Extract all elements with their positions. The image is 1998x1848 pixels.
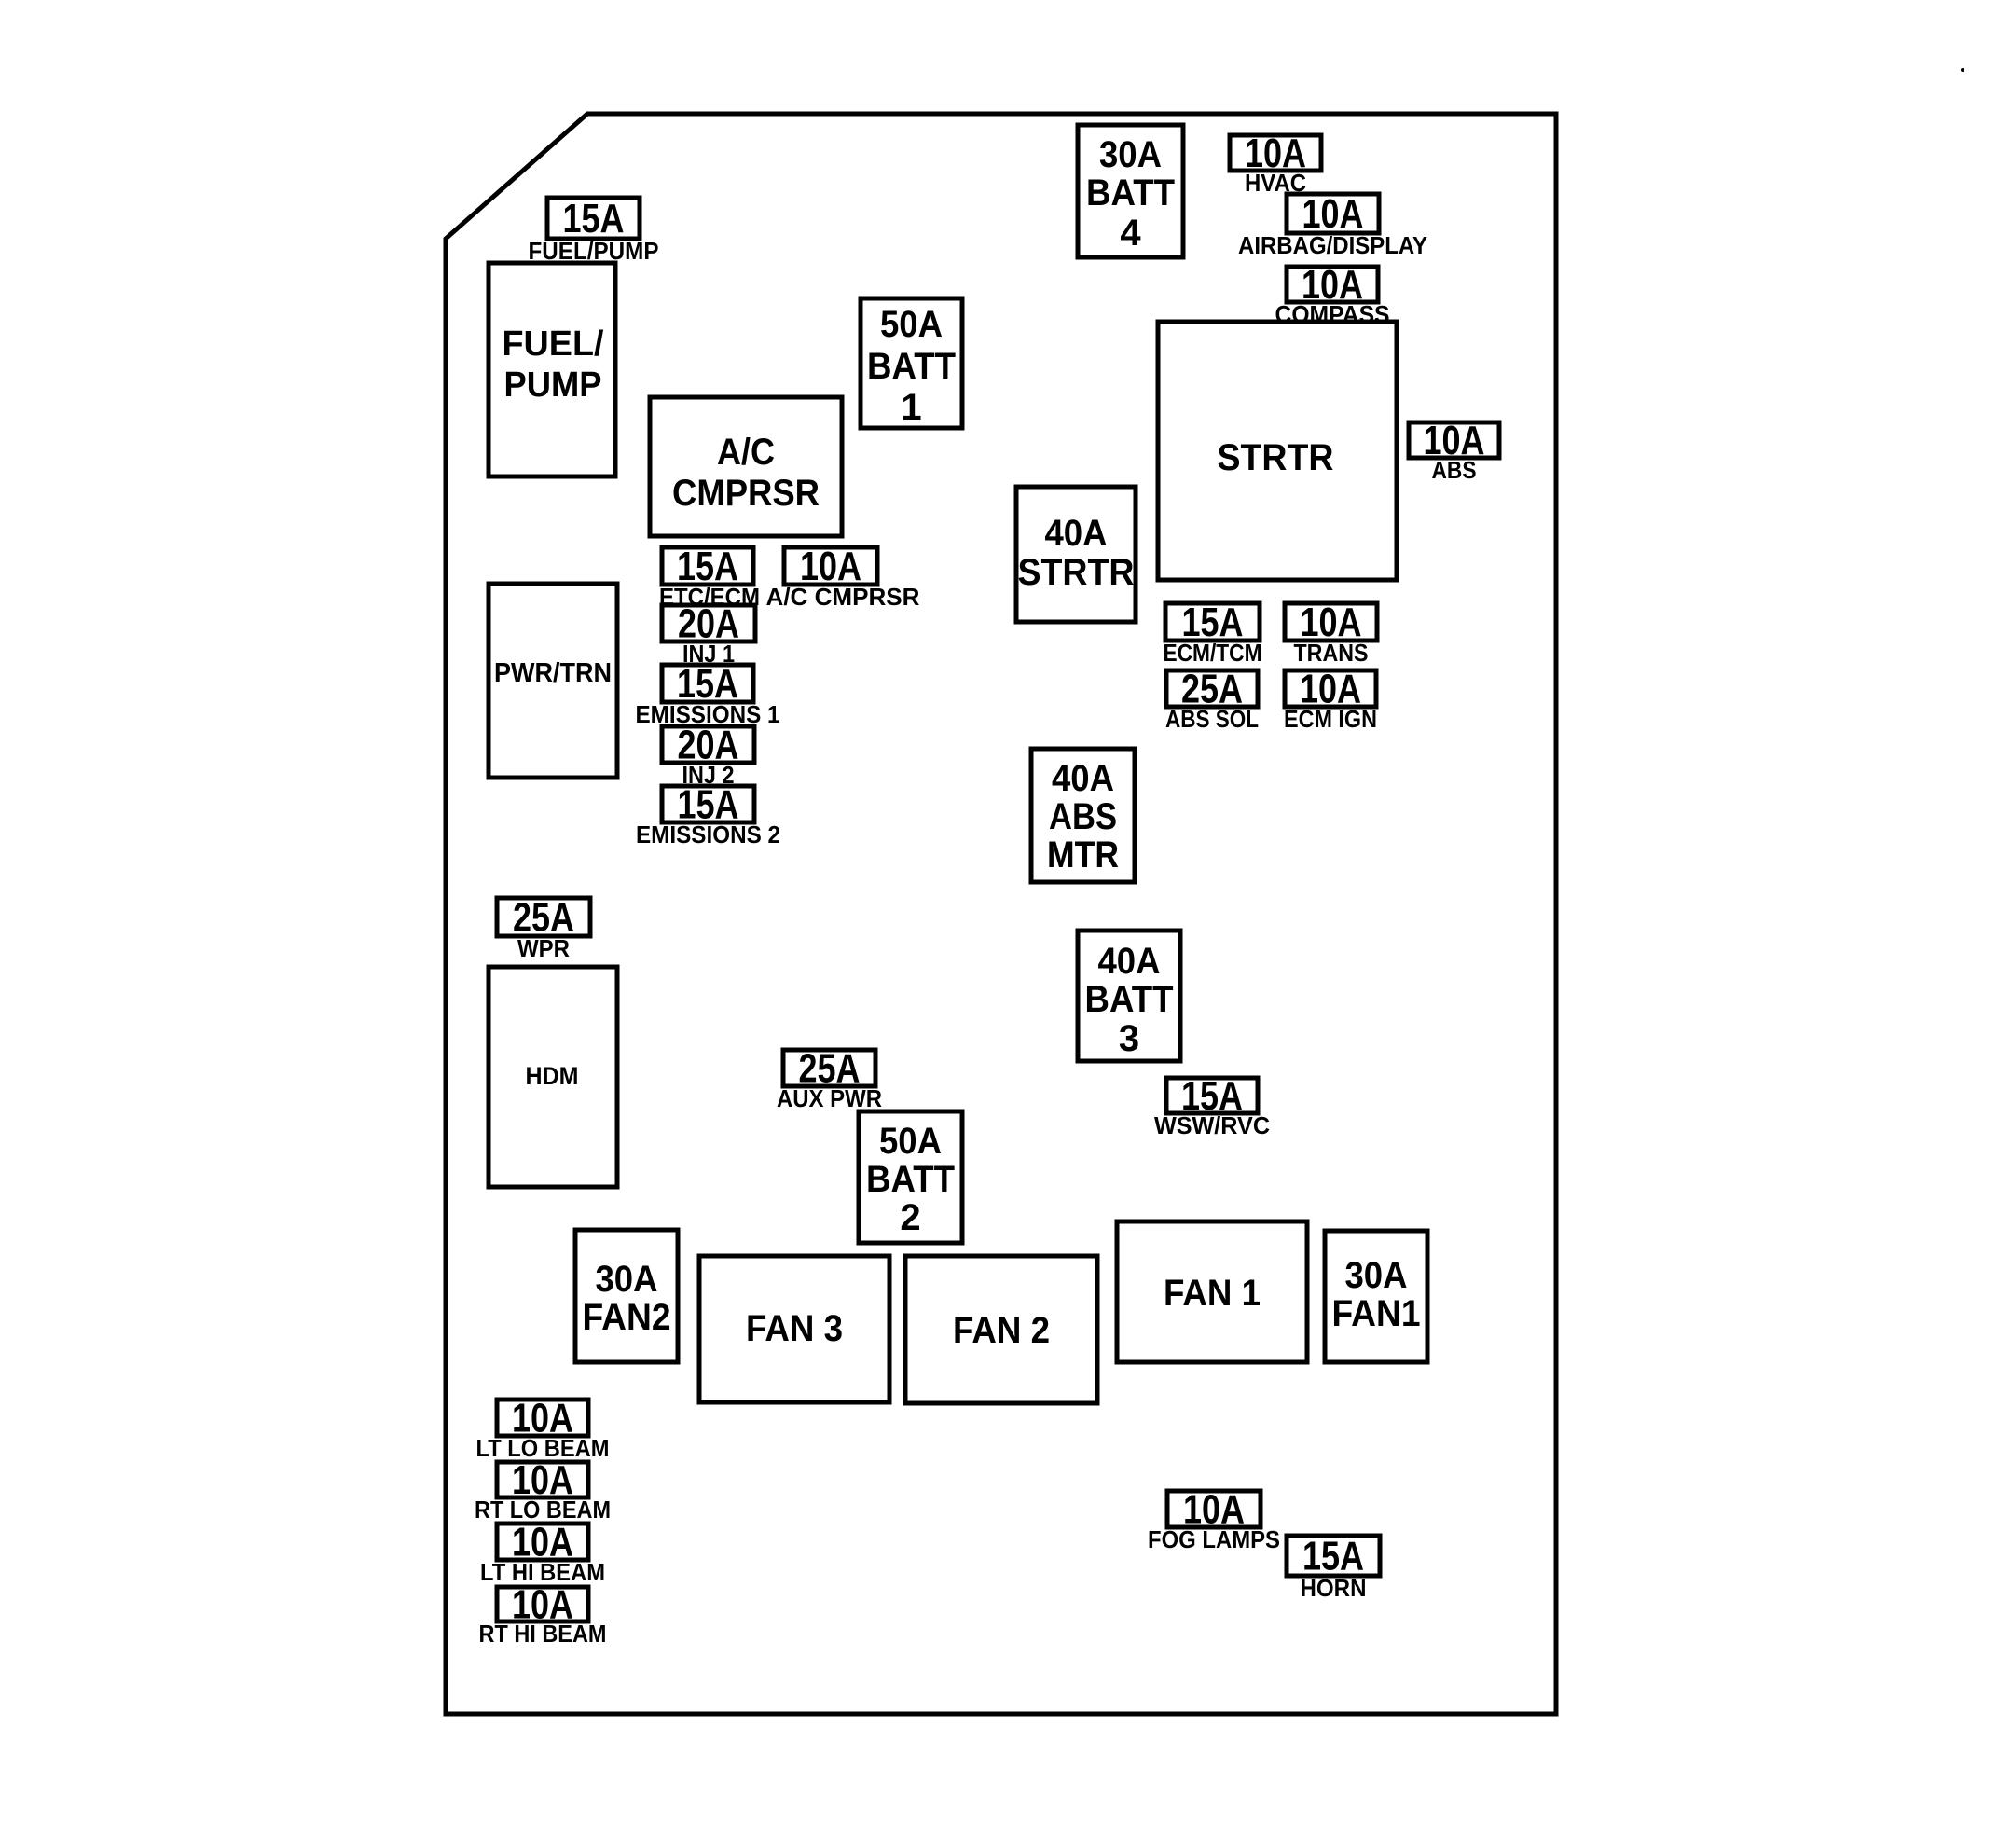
svg-text:ECM/TCM: ECM/TCM (1164, 639, 1262, 667)
svg-text:ABS SOL: ABS SOL (1165, 705, 1259, 733)
svg-text:30A: 30A (1345, 1255, 1408, 1296)
svg-text:FAN 2: FAN 2 (953, 1310, 1050, 1351)
svg-text:10A: 10A (1302, 191, 1364, 237)
svg-text:WPR: WPR (517, 934, 570, 962)
svg-text:1: 1 (901, 387, 921, 428)
svg-text:BATT: BATT (867, 346, 956, 387)
svg-text:STRTR: STRTR (1218, 437, 1334, 478)
svg-text:40A: 40A (1098, 941, 1161, 982)
svg-text:ECM IGN: ECM IGN (1284, 705, 1377, 733)
svg-text:15A: 15A (563, 196, 625, 241)
svg-text:FUEL/: FUEL/ (503, 324, 604, 364)
svg-text:40A: 40A (1052, 758, 1114, 799)
svg-text:ABS: ABS (1049, 796, 1117, 837)
svg-text:HDM: HDM (526, 1062, 579, 1090)
svg-text:30A: 30A (1099, 134, 1162, 175)
svg-text:EMISSIONS 2: EMISSIONS 2 (636, 821, 780, 848)
svg-text:4: 4 (1120, 213, 1141, 254)
svg-text:BATT: BATT (1085, 979, 1174, 1020)
svg-text:BATT: BATT (866, 1159, 955, 1200)
svg-text:2: 2 (900, 1197, 920, 1238)
svg-text:40A: 40A (1045, 513, 1108, 554)
svg-text:FAN 1: FAN 1 (1164, 1273, 1261, 1314)
svg-text:WSW/RVC: WSW/RVC (1154, 1111, 1270, 1139)
svg-text:PWR/TRN: PWR/TRN (494, 658, 612, 688)
svg-text:BATT: BATT (1086, 172, 1175, 214)
svg-text:PUMP: PUMP (504, 365, 602, 405)
svg-text:HORN: HORN (1301, 1574, 1367, 1602)
svg-text:A/C CMPRSR: A/C CMPRSR (766, 583, 920, 611)
svg-text:STRTR: STRTR (1018, 552, 1135, 593)
svg-text:50A: 50A (880, 304, 943, 345)
svg-text:FAN1: FAN1 (1332, 1293, 1421, 1334)
svg-text:CMPRSR: CMPRSR (672, 473, 820, 514)
svg-text:RT HI BEAM: RT HI BEAM (479, 1620, 607, 1648)
svg-text:50A: 50A (879, 1121, 942, 1162)
svg-text:3: 3 (1119, 1018, 1139, 1059)
svg-text:AIRBAG/DISPLAY: AIRBAG/DISPLAY (1238, 231, 1427, 259)
svg-text:30A: 30A (596, 1259, 658, 1300)
svg-text:FAN 3: FAN 3 (746, 1308, 843, 1349)
svg-text:MTR: MTR (1047, 834, 1119, 876)
svg-text:A/C: A/C (717, 432, 775, 473)
svg-text:FOG LAMPS: FOG LAMPS (1148, 1525, 1280, 1553)
svg-text:TRANS: TRANS (1294, 639, 1369, 667)
svg-text:15A: 15A (1302, 1534, 1364, 1579)
svg-text:ABS: ABS (1432, 456, 1477, 484)
svg-text:FAN2: FAN2 (583, 1297, 671, 1338)
svg-text:AUX PWR: AUX PWR (777, 1084, 882, 1112)
